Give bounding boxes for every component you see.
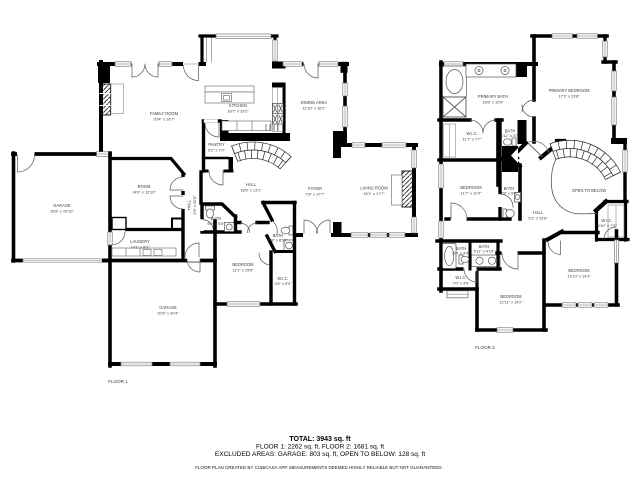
- svg-text:5'11" x 4'10": 5'11" x 4'10": [473, 249, 495, 254]
- svg-text:BEDROOM: BEDROOM: [568, 268, 590, 273]
- svg-text:3'9" x 30'8": 3'9" x 30'8": [192, 195, 197, 215]
- svg-text:5'2" x 7'0": 5'2" x 7'0": [208, 148, 226, 153]
- svg-text:KITCHEN: KITCHEN: [229, 103, 247, 108]
- svg-text:BEDROOM: BEDROOM: [232, 262, 254, 267]
- svg-text:W.I.C.: W.I.C.: [466, 131, 477, 136]
- svg-text:4'11" x 3'7": 4'11" x 3'7": [501, 133, 521, 138]
- svg-text:17'3" x 23'8": 17'3" x 23'8": [558, 94, 580, 99]
- svg-text:11'10" x 16'2": 11'10" x 16'2": [302, 106, 326, 111]
- svg-text:5'8" x 8'10": 5'8" x 8'10": [268, 238, 288, 243]
- svg-text:HALL: HALL: [533, 210, 544, 215]
- svg-text:ROOM: ROOM: [138, 184, 151, 189]
- svg-text:11'7" x 11'9": 11'7" x 11'9": [461, 191, 482, 196]
- svg-text:GARAGE: GARAGE: [159, 305, 177, 310]
- svg-text:5'1" x 23'6": 5'1" x 23'6": [528, 216, 548, 221]
- svg-text:12'11" x 14'2": 12'11" x 14'2": [499, 300, 523, 305]
- svg-text:LIVING ROOM: LIVING ROOM: [360, 186, 388, 191]
- svg-text:HALL: HALL: [187, 199, 192, 210]
- svg-text:BEDROOM: BEDROOM: [460, 185, 482, 190]
- svg-text:16'8" x 10'9": 16'8" x 10'9": [482, 100, 504, 105]
- svg-text:14'1" x 8'3": 14'1" x 8'3": [130, 245, 150, 250]
- svg-text:BEDROOM: BEDROOM: [500, 294, 522, 299]
- svg-text:PRIMARY BATH: PRIMARY BATH: [478, 94, 508, 99]
- svg-text:DINING AREA: DINING AREA: [301, 100, 328, 105]
- svg-text:PRIMARY BEDROOM: PRIMARY BEDROOM: [549, 88, 590, 93]
- svg-text:FAMILY ROOM: FAMILY ROOM: [150, 111, 179, 116]
- svg-text:FLOOR 2: FLOOR 2: [475, 345, 495, 350]
- svg-text:FLOOR 1: 2262 sq. ft, FLOOR 2:: FLOOR 1: 2262 sq. ft, FLOOR 2: 1681 sq. …: [256, 444, 384, 451]
- svg-text:11'1" x 15'6": 11'1" x 15'6": [232, 268, 254, 273]
- svg-text:FLOOR PLAN CREATED BY CUBICASA: FLOOR PLAN CREATED BY CUBICASA APP. MEAS…: [195, 465, 442, 470]
- svg-text:HALL: HALL: [246, 182, 257, 187]
- svg-text:7'8" x 17'7": 7'8" x 17'7": [305, 192, 325, 197]
- svg-text:OPEN TO BELOW: OPEN TO BELOW: [572, 188, 606, 193]
- svg-text:5'10" x 7'3": 5'10" x 7'3": [597, 223, 617, 228]
- svg-text:11'7" x 7'7": 11'7" x 7'7": [463, 137, 483, 142]
- svg-text:W.I.C.: W.I.C.: [455, 275, 466, 280]
- svg-text:13'10" x 14'3": 13'10" x 14'3": [567, 274, 591, 279]
- svg-text:PANTRY: PANTRY: [208, 142, 224, 147]
- svg-text:4'5" x 9'9": 4'5" x 9'9": [274, 281, 292, 286]
- svg-text:20'3" x 20'4": 20'3" x 20'4": [157, 311, 179, 316]
- svg-text:20'4" x 16'7": 20'4" x 16'7": [153, 117, 175, 122]
- svg-text:16'7" x 19'2": 16'7" x 19'2": [227, 109, 249, 114]
- svg-text:FOYER: FOYER: [308, 186, 322, 191]
- svg-text:16'1" x 17'7": 16'1" x 17'7": [363, 191, 385, 196]
- svg-text:4'5" x 9'9": 4'5" x 9'9": [500, 191, 518, 196]
- svg-text:EXCLUDED AREAS: GARAGE: 803 sq: EXCLUDED AREAS: GARAGE: 803 sq. ft, OPEN…: [215, 451, 425, 458]
- svg-text:7'0" x 4'9": 7'0" x 4'9": [452, 281, 470, 286]
- svg-text:GARAGE: GARAGE: [53, 203, 71, 208]
- svg-text:6'2" x 5'8": 6'2" x 5'8": [207, 221, 225, 226]
- svg-text:18'9" x 13'1": 18'9" x 13'1": [240, 188, 262, 193]
- svg-text:LAUNDRY: LAUNDRY: [130, 239, 150, 244]
- svg-text:TOTAL: 3943 sq. ft: TOTAL: 3943 sq. ft: [289, 436, 351, 443]
- svg-text:16'8" x 20'10": 16'8" x 20'10": [50, 209, 74, 214]
- svg-text:14'0" x 13'10": 14'0" x 13'10": [132, 190, 156, 195]
- svg-text:6'3" x 4'4": 6'3" x 4'4": [452, 251, 470, 256]
- svg-text:FLOOR 1: FLOOR 1: [108, 379, 128, 384]
